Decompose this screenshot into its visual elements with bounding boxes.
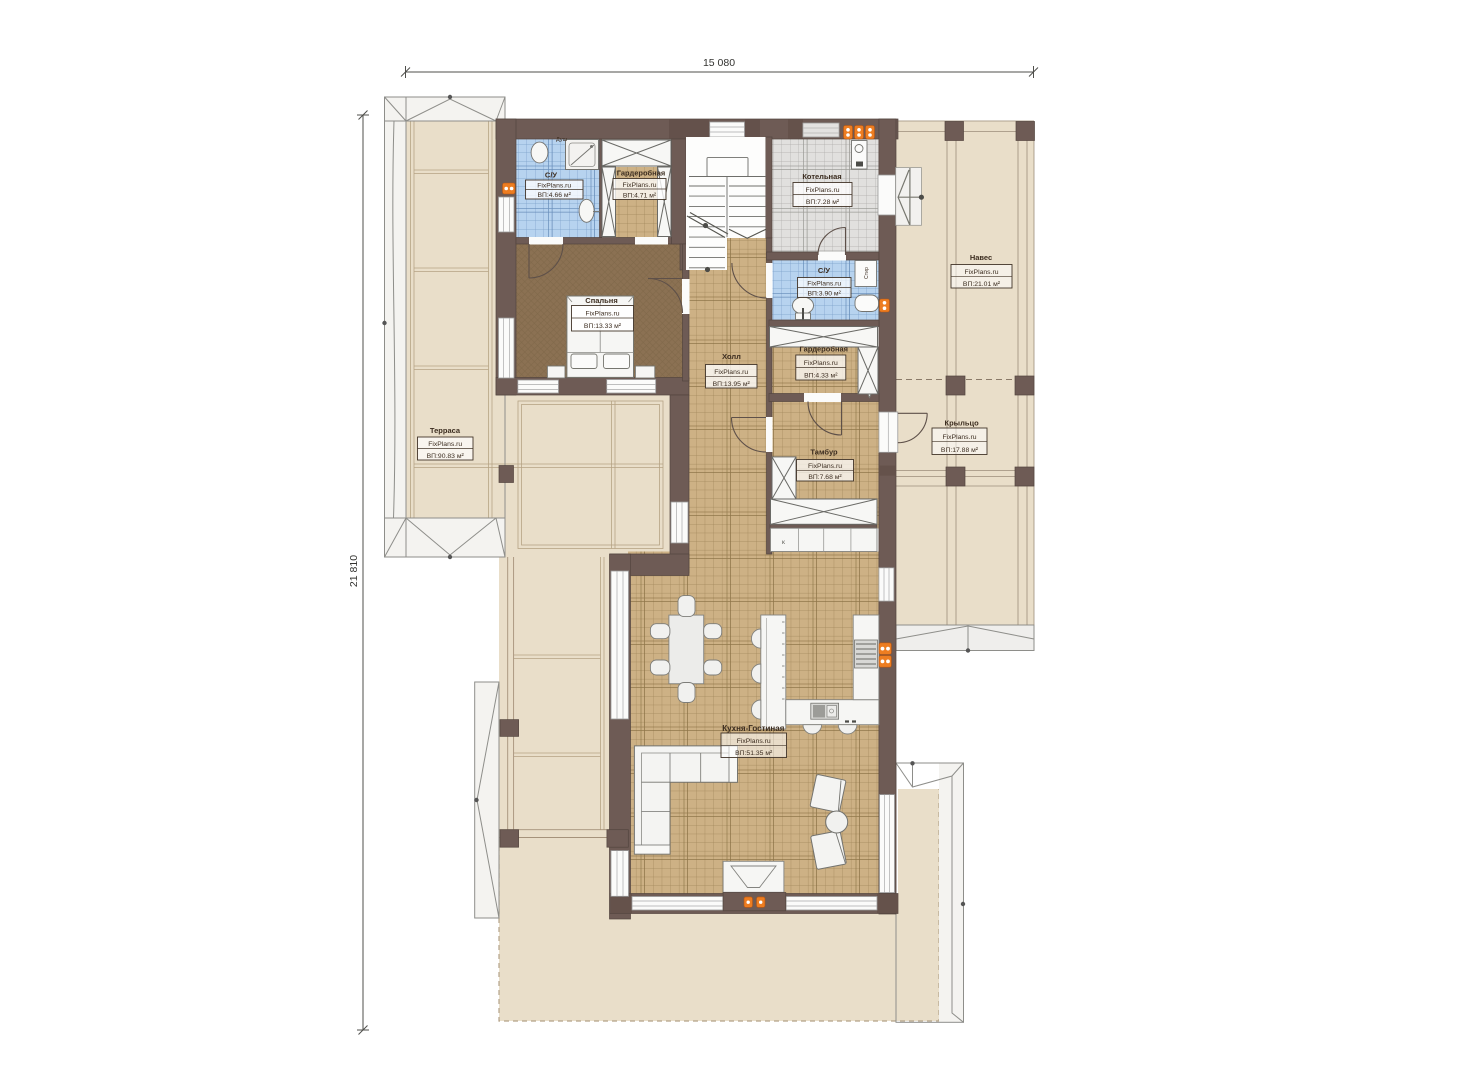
svg-text:ВП:4.71 м²: ВП:4.71 м²	[623, 192, 657, 199]
svg-text:FixPlans.ru: FixPlans.ru	[943, 434, 977, 441]
svg-text:FixPlans.ru: FixPlans.ru	[714, 369, 748, 376]
svg-text:FixPlans.ru: FixPlans.ru	[737, 738, 771, 745]
svg-text:ВП:17.88 м²: ВП:17.88 м²	[941, 447, 979, 454]
svg-text:Тамбур: Тамбур	[810, 448, 838, 457]
svg-text:ВП:4.66 м²: ВП:4.66 м²	[538, 192, 572, 199]
svg-text:FixPlans.ru: FixPlans.ru	[586, 310, 620, 317]
svg-text:Холл: Холл	[722, 352, 741, 361]
svg-text:С/У: С/У	[545, 171, 558, 180]
svg-text:ВП:13.33 м²: ВП:13.33 м²	[584, 323, 622, 330]
svg-text:ВП:3.90 м²: ВП:3.90 м²	[808, 290, 842, 297]
svg-text:ВП:90.83 м²: ВП:90.83 м²	[427, 453, 465, 460]
svg-text:FixPlans.ru: FixPlans.ru	[808, 463, 842, 470]
svg-text:FixPlans.ru: FixPlans.ru	[804, 360, 838, 367]
svg-text:ВП:4.33 м²: ВП:4.33 м²	[804, 373, 838, 380]
svg-text:ВП:13.95 м²: ВП:13.95 м²	[713, 381, 751, 388]
svg-text:FixPlans.ru: FixPlans.ru	[965, 269, 999, 276]
svg-text:Котельная: Котельная	[802, 172, 841, 181]
svg-text:ВП:7.28 м²: ВП:7.28 м²	[806, 199, 840, 206]
svg-text:Кухня-Гостиная: Кухня-Гостиная	[722, 724, 785, 733]
svg-text:Навес: Навес	[970, 253, 992, 262]
svg-text:Гардеробная: Гардеробная	[800, 345, 849, 354]
svg-text:21 810: 21 810	[348, 555, 360, 587]
svg-text:FixPlans.ru: FixPlans.ru	[807, 280, 841, 287]
svg-text:FixPlans.ru: FixPlans.ru	[537, 182, 571, 189]
svg-text:Гардеробная: Гардеробная	[617, 169, 666, 178]
svg-text:ВП:21.01 м²: ВП:21.01 м²	[963, 281, 1001, 288]
svg-text:Спальня: Спальня	[585, 296, 617, 305]
svg-text:ВП:51.35 м²: ВП:51.35 м²	[735, 750, 773, 757]
svg-text:15 080: 15 080	[703, 57, 735, 69]
svg-text:FixPlans.ru: FixPlans.ru	[428, 441, 462, 448]
svg-text:FixPlans.ru: FixPlans.ru	[806, 187, 840, 194]
svg-text:Крыльцо: Крыльцо	[945, 419, 980, 428]
svg-text:С/У: С/У	[818, 266, 831, 275]
svg-text:Стир: Стир	[864, 267, 870, 279]
svg-text:к: к	[782, 539, 785, 546]
svg-text:Душ: Душ	[556, 137, 568, 143]
svg-text:ВП:7.68 м²: ВП:7.68 м²	[808, 474, 842, 481]
svg-text:Терраса: Терраса	[430, 426, 461, 435]
svg-text:FixPlans.ru: FixPlans.ru	[623, 182, 657, 189]
